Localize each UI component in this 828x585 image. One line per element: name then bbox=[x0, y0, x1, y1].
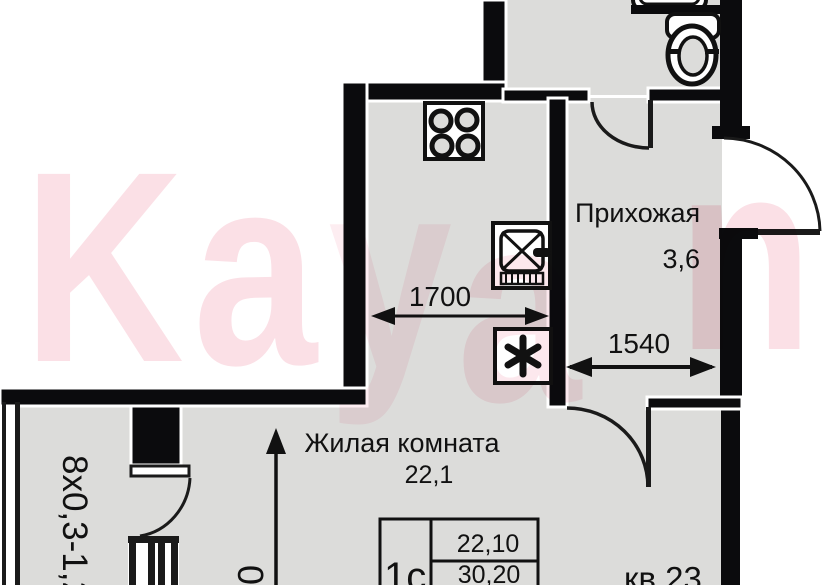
svg-text:8x0,3-1,2: 8x0,3-1,2 bbox=[55, 455, 94, 585]
svg-text:22,10: 22,10 bbox=[457, 530, 520, 558]
svg-text:кв.23: кв.23 bbox=[624, 560, 702, 585]
svg-text:30,20: 30,20 bbox=[458, 561, 521, 585]
svg-text:22,1: 22,1 bbox=[405, 461, 454, 489]
svg-text:1540: 1540 bbox=[608, 328, 670, 359]
svg-text:1с: 1с bbox=[384, 555, 426, 585]
svg-text:1700: 1700 bbox=[409, 281, 471, 312]
svg-text:05: 05 bbox=[230, 565, 271, 585]
svg-text:3,6: 3,6 bbox=[662, 244, 700, 274]
svg-text:Прихожая: Прихожая bbox=[575, 198, 700, 228]
svg-text:Жилая комната: Жилая комната bbox=[304, 428, 500, 458]
